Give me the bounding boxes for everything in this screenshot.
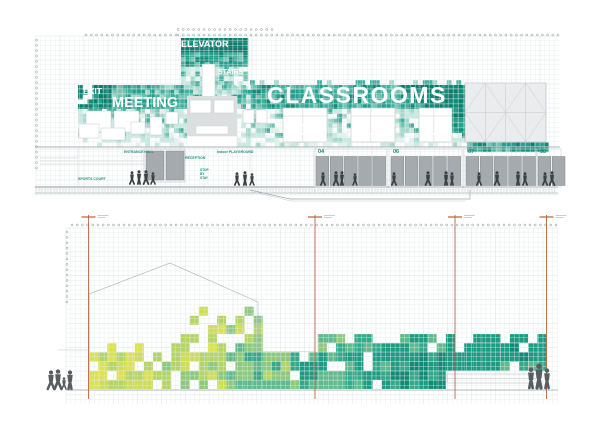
label-reception: RECEPTION — [185, 157, 205, 161]
architectural-elevation-sheet: ELEVATOR STAIRS EXIT MEETING CLASSROOMS … — [0, 0, 600, 424]
bottom-elevation-mosaic — [89, 307, 546, 389]
door-number-04: 04 — [318, 150, 324, 156]
braced-panel — [465, 83, 546, 142]
room-number-13: 13 — [427, 121, 446, 138]
label-playground: indoor PLAYGROUND — [217, 151, 253, 155]
label-stop-by-stay-3: STAY — [200, 177, 208, 180]
label-elevator: ELEVATOR — [181, 40, 229, 49]
elevation-drawing-canvas — [0, 0, 600, 424]
label-entrance-hall: ENTRANCE HALL — [124, 151, 154, 155]
label-stairs: STAIRS — [218, 69, 243, 76]
label-sports-court: SPORTS COURT — [78, 178, 106, 182]
door-number-08: 08 — [540, 150, 546, 156]
label-exit: EXIT — [83, 87, 102, 96]
door-number-07: 07 — [468, 150, 474, 156]
door-number-06: 06 — [393, 150, 399, 156]
room-number-12: 12 — [362, 121, 381, 138]
door-group — [314, 149, 387, 187]
label-classrooms: CLASSROOMS — [267, 84, 447, 107]
label-meeting: MEETING — [112, 96, 178, 111]
room-number-11: 11 — [299, 121, 317, 138]
